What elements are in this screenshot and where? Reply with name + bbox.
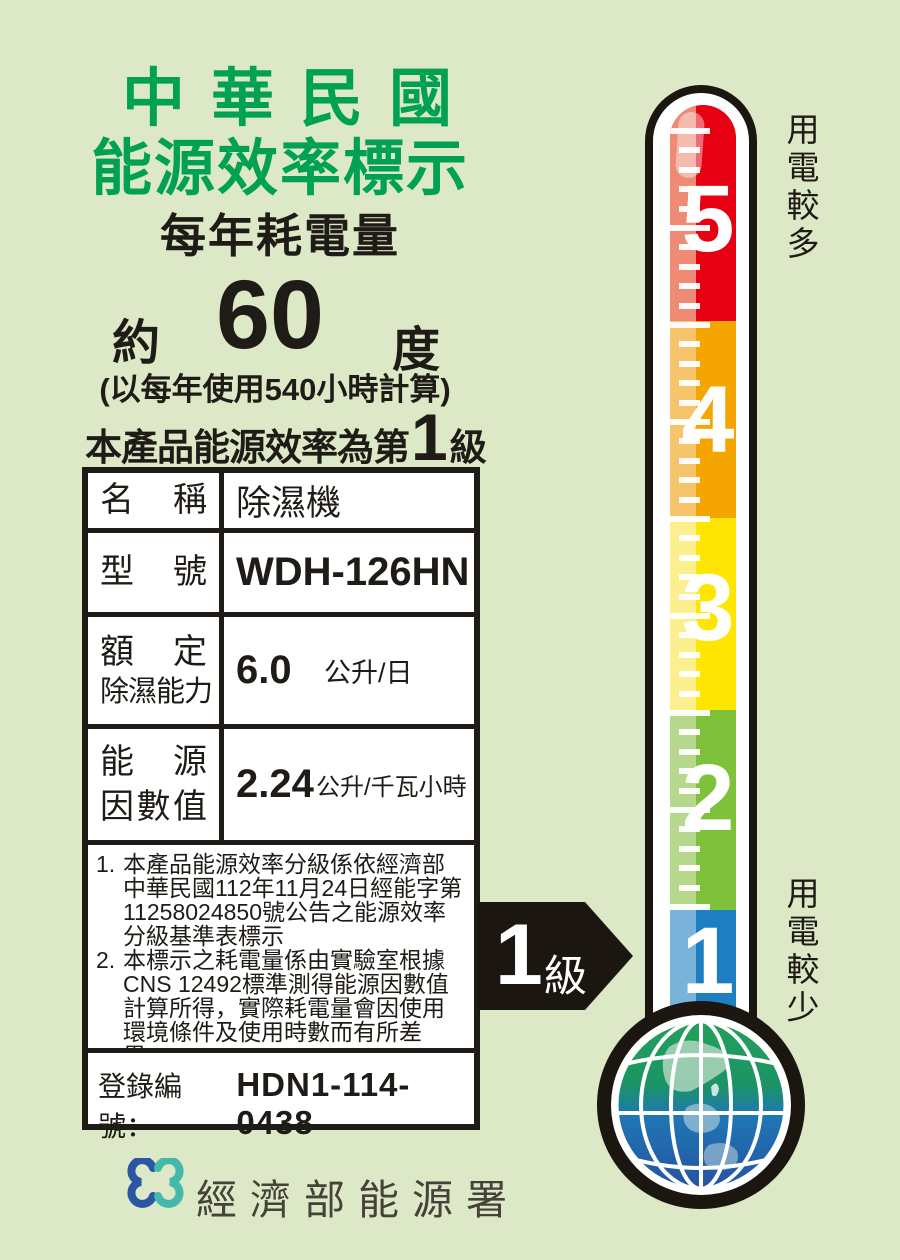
agency-name: 經濟部能源署 bbox=[196, 1166, 520, 1226]
scale-tick bbox=[679, 535, 700, 541]
globe-icon bbox=[591, 995, 811, 1215]
scale-tick bbox=[679, 341, 700, 347]
scale-tick bbox=[670, 225, 710, 231]
scale-tick bbox=[679, 846, 700, 852]
table-row: 名稱除濕機 bbox=[88, 473, 474, 533]
scale-tick bbox=[679, 186, 700, 192]
row-label-line: 能源 bbox=[100, 740, 207, 784]
scale-tick bbox=[679, 400, 700, 406]
row-value: WDH-126HN bbox=[224, 533, 474, 612]
scale-tick bbox=[679, 826, 700, 832]
scale-tick bbox=[679, 283, 700, 289]
registration-label: 登錄編號： bbox=[98, 1065, 230, 1145]
scale-tick bbox=[670, 710, 710, 716]
label-title-type: 能源效率標示 bbox=[90, 118, 470, 207]
scale-tick bbox=[679, 497, 700, 503]
scale-tick bbox=[679, 477, 700, 483]
row-value: 除濕機 bbox=[224, 473, 474, 528]
scale-tick bbox=[679, 458, 700, 464]
scale-tick bbox=[679, 788, 700, 794]
grade-sentence-prefix: 本產品能源效率為第 bbox=[85, 417, 409, 471]
row-label: 能源因數值 bbox=[88, 729, 224, 840]
table-row: 能源因數值2.24公升/千瓦小時 bbox=[88, 729, 474, 845]
scale-tick bbox=[679, 438, 700, 444]
consumption-prefix: 約 bbox=[112, 303, 160, 373]
note-item: 2.本標示之耗電量係由實驗室根據CNS 12492標準測得能源因數值計算所得，實… bbox=[96, 948, 466, 1048]
scale-tick bbox=[670, 613, 710, 619]
scale-tick bbox=[679, 303, 700, 309]
scale-tick bbox=[679, 206, 700, 212]
annual-consumption-heading: 每年耗電量 bbox=[90, 200, 470, 266]
scale-tick bbox=[670, 128, 710, 134]
registration-row: 登錄編號： HDN1-114-0438 bbox=[88, 1048, 474, 1145]
grade-arrow: 1 級 bbox=[478, 902, 633, 1010]
row-label-line: 因數值 bbox=[100, 785, 207, 829]
scale-tick bbox=[679, 574, 700, 580]
scale-tick bbox=[679, 671, 700, 677]
table-row: 額定除濕能力6.0公升/日 bbox=[88, 617, 474, 729]
scale-tick bbox=[670, 322, 710, 328]
row-label-line: 除濕能力 bbox=[100, 674, 207, 712]
row-value: 6.0公升/日 bbox=[224, 617, 474, 724]
grade-arrow-tip bbox=[585, 902, 633, 1010]
consumption-value: 60 bbox=[200, 266, 340, 363]
scale-tick bbox=[670, 419, 710, 425]
scale-tick bbox=[679, 555, 700, 561]
scale-tick bbox=[679, 594, 700, 600]
scale-tick bbox=[670, 807, 710, 813]
table-row: 型號WDH-126HN bbox=[88, 533, 474, 617]
row-value: 2.24公升/千瓦小時 bbox=[224, 729, 474, 840]
scale-tick bbox=[679, 691, 700, 697]
grade-sentence: 本產品能源效率為第 1 級 bbox=[85, 404, 485, 471]
energy-administration-logo-icon bbox=[108, 1158, 184, 1208]
note-item: 1.本產品能源效率分級係依經濟部中華民國112年11月24日經能字第112580… bbox=[96, 852, 466, 948]
scale-tick bbox=[679, 749, 700, 755]
grade-sentence-grade: 1 bbox=[411, 404, 448, 470]
row-label: 額定除濕能力 bbox=[88, 617, 224, 724]
notes-section: 1.本產品能源效率分級係依經濟部中華民國112年11月24日經能字第112580… bbox=[88, 845, 474, 1048]
scale-tick bbox=[679, 380, 700, 386]
scale-tick bbox=[679, 264, 700, 270]
row-label-line: 型號 bbox=[100, 550, 207, 594]
scale-tick bbox=[670, 904, 710, 910]
scale-tick bbox=[670, 516, 710, 522]
thermometer-tube: 54321 bbox=[645, 85, 757, 1020]
energy-label: 中華民國 能源效率標示 每年耗電量 約 60 度 (以每年使用540小時計算) … bbox=[0, 0, 900, 1260]
scale-tick bbox=[679, 147, 700, 153]
grade-sentence-suffix: 級 bbox=[450, 417, 486, 471]
scale-tick bbox=[679, 632, 700, 638]
registration-number: HDN1-114-0438 bbox=[236, 1066, 474, 1142]
row-label-line: 額定 bbox=[100, 630, 207, 674]
scale-tick bbox=[679, 244, 700, 250]
thermometer-scale: 54321 bbox=[670, 105, 736, 1020]
row-label: 型號 bbox=[88, 533, 224, 612]
row-label-line: 名稱 bbox=[100, 478, 207, 522]
row-label: 名稱 bbox=[88, 473, 224, 528]
row-unit: 公升/千瓦小時 bbox=[316, 767, 467, 802]
spec-table: 名稱除濕機型號WDH-126HN額定除濕能力6.0公升/日能源因數值2.24公升… bbox=[88, 473, 474, 845]
scale-tick bbox=[679, 167, 700, 173]
scale-tick bbox=[679, 652, 700, 658]
scale-tick bbox=[679, 885, 700, 891]
thermometer-tube-inner: 54321 bbox=[653, 93, 749, 1020]
scale-label-high-usage: 用電較多 bbox=[776, 112, 824, 264]
grade-arrow-number: 1 bbox=[495, 912, 543, 998]
grade-arrow-suffix: 級 bbox=[544, 956, 587, 999]
spec-box: 名稱除濕機型號WDH-126HN額定除濕能力6.0公升/日能源因數值2.24公升… bbox=[82, 467, 480, 1130]
scale-tick bbox=[679, 729, 700, 735]
scale-tick bbox=[679, 865, 700, 871]
row-unit: 公升/日 bbox=[324, 651, 413, 690]
scale-tick bbox=[679, 768, 700, 774]
scale-tick bbox=[679, 361, 700, 367]
